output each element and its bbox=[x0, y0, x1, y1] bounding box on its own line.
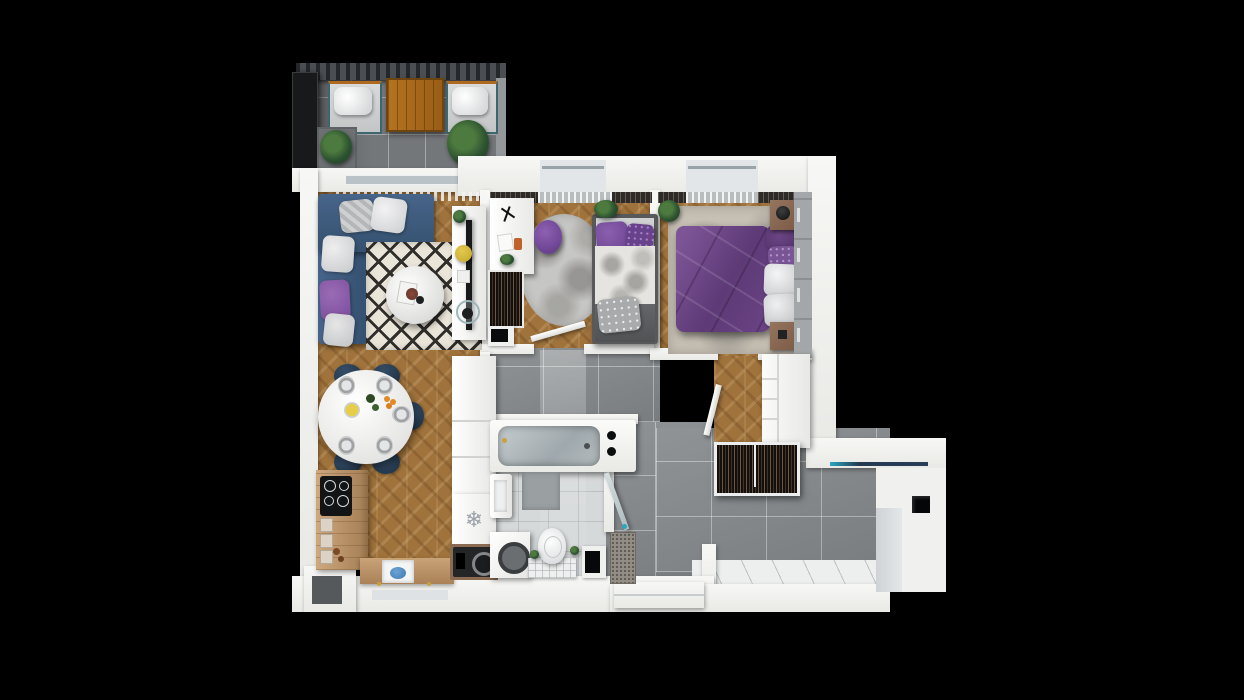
cabinet-divider bbox=[777, 354, 779, 448]
tub-knob bbox=[607, 447, 616, 456]
desk-paper bbox=[497, 233, 514, 252]
bed2-plant bbox=[658, 200, 680, 222]
basin-inner bbox=[494, 480, 507, 512]
bedroom-master-window bbox=[686, 160, 758, 192]
washbasin bbox=[490, 474, 512, 518]
kitchen-drawer bbox=[320, 534, 333, 548]
kitchen-sink-basin bbox=[390, 567, 406, 579]
sofa-pillow-light bbox=[322, 313, 355, 348]
bed1-bottom-wall-right bbox=[584, 344, 654, 354]
bottom-left-niche bbox=[312, 576, 342, 604]
appliance-slot bbox=[456, 553, 465, 569]
place-setting bbox=[338, 376, 355, 395]
kitchen-window-sill bbox=[372, 590, 448, 600]
lemon-plate bbox=[344, 402, 360, 418]
bed2-curtain-sheer bbox=[686, 192, 758, 203]
dresser-front-dark bbox=[491, 329, 508, 342]
tub-knob bbox=[607, 431, 616, 440]
top-exterior-wall bbox=[458, 156, 836, 196]
bed1-open-wardrobe bbox=[488, 270, 524, 328]
hob-burner bbox=[324, 480, 336, 492]
place-setting bbox=[338, 436, 355, 455]
right-end-cap bbox=[876, 508, 902, 592]
kitchen-drawer bbox=[320, 518, 333, 532]
herb-pot bbox=[372, 404, 379, 411]
faucet bbox=[377, 582, 381, 586]
master-corridor-floor bbox=[714, 356, 764, 446]
privacy-screen bbox=[292, 72, 318, 170]
sofa-pillow-gray bbox=[338, 198, 375, 233]
bedroom-small-window bbox=[540, 160, 606, 192]
entry-niche-box bbox=[582, 546, 606, 578]
washing-machine bbox=[490, 532, 530, 578]
faucet bbox=[427, 582, 431, 586]
hall-cabinet bbox=[762, 354, 810, 448]
entry-step bbox=[614, 582, 704, 608]
nightstand-item bbox=[778, 330, 787, 339]
desk-lamp bbox=[514, 238, 522, 250]
place-setting bbox=[376, 376, 393, 395]
sofa-pillow-white-1 bbox=[370, 196, 408, 234]
bed1-dresser bbox=[488, 326, 514, 346]
place-setting bbox=[392, 406, 411, 423]
balcony-plant-left bbox=[320, 130, 352, 164]
yellow-stool bbox=[455, 245, 472, 262]
right-window-glass bbox=[830, 462, 928, 466]
window-glass bbox=[542, 166, 604, 169]
bath-plant bbox=[570, 546, 579, 555]
green-bottle bbox=[366, 394, 375, 403]
bed1-plant bbox=[594, 200, 618, 218]
washer-drum bbox=[498, 542, 530, 574]
rack-divider bbox=[754, 445, 756, 487]
floor-plan-render: ❄ bbox=[0, 0, 1244, 700]
hob-burner bbox=[324, 496, 334, 506]
console-box bbox=[457, 270, 470, 283]
doormat bbox=[610, 532, 636, 584]
step-edge bbox=[614, 594, 704, 596]
desk-chair-purple bbox=[534, 220, 562, 254]
desk-plant bbox=[500, 254, 514, 265]
wardrobe-handle bbox=[797, 208, 800, 222]
window-glass bbox=[688, 166, 756, 169]
niche-dark bbox=[585, 551, 600, 573]
kitchen-drawer bbox=[320, 550, 333, 564]
orange-fruit bbox=[384, 396, 390, 402]
sofa-pillow-white-2 bbox=[321, 235, 355, 273]
balcony-table bbox=[386, 78, 444, 132]
lounge-cushion bbox=[452, 87, 488, 115]
entry-clothes-rack bbox=[714, 442, 800, 496]
hob-burner bbox=[339, 481, 349, 491]
toilet-seat-line bbox=[544, 536, 562, 558]
double-bed-duvet bbox=[676, 226, 770, 332]
jar bbox=[338, 556, 344, 562]
built-in-appliance bbox=[453, 547, 495, 577]
bed1-dot-pillow bbox=[596, 296, 641, 334]
tub-drain bbox=[584, 443, 590, 449]
coffee-table-cup bbox=[416, 296, 424, 304]
master-wardrobe bbox=[794, 192, 812, 358]
place-setting bbox=[376, 436, 393, 455]
bath-mat bbox=[522, 472, 560, 510]
console-plant bbox=[453, 210, 466, 223]
lounge-cushion bbox=[334, 87, 372, 115]
table-lamp bbox=[776, 206, 790, 220]
hob-burner bbox=[337, 495, 349, 507]
right-exterior-wall bbox=[808, 156, 836, 448]
cabinet-shelf bbox=[762, 378, 777, 380]
bath-plant bbox=[530, 550, 539, 559]
jar bbox=[333, 548, 340, 555]
wall-niche-dark bbox=[912, 496, 930, 513]
door-handle bbox=[622, 524, 627, 529]
black-speaker bbox=[462, 308, 473, 319]
tub-faucet bbox=[502, 438, 507, 443]
